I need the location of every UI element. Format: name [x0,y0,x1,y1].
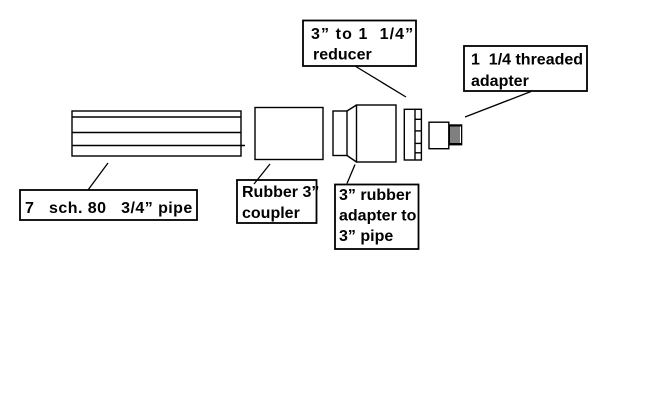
svg-text:3” pipe: 3” pipe [339,228,393,245]
svg-text:coupler: coupler [242,205,300,222]
svg-text:3” rubber: 3” rubber [339,187,411,204]
svg-text:7 sch. 80 3/4” pipe: 7 sch. 80 3/4” pipe [25,200,193,217]
svg-text:reducer: reducer [313,47,372,64]
svg-text:3” to 1 1/4”: 3” to 1 1/4” [311,26,414,43]
svg-text:adapter to: adapter to [339,208,417,225]
svg-text:adapter: adapter [471,73,529,90]
svg-text:1 1/4 threaded: 1 1/4 threaded [471,52,583,69]
svg-text:Rubber 3”: Rubber 3” [242,184,319,201]
